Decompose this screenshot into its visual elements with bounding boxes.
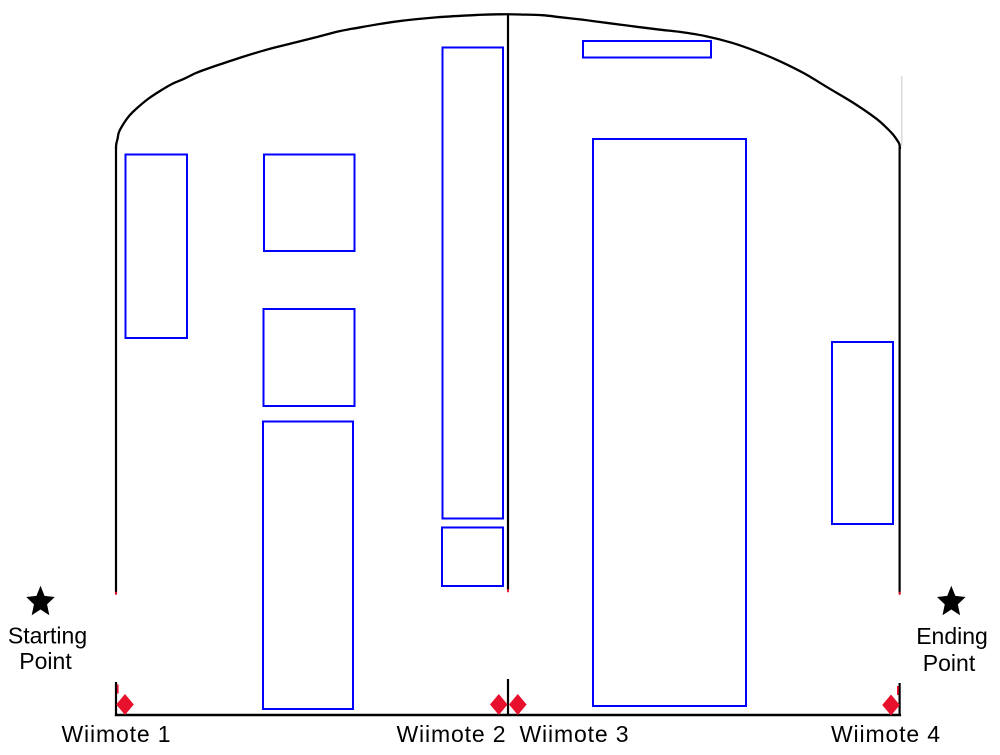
svg-text:Wiimote 3: Wiimote 3	[520, 721, 630, 747]
svg-text:Starting: Starting	[8, 623, 87, 649]
svg-text:Ending: Ending	[916, 623, 988, 649]
svg-text:Wiimote 2: Wiimote 2	[397, 721, 507, 747]
svg-text:Point: Point	[923, 650, 976, 676]
svg-text:Wiimote 1: Wiimote 1	[62, 721, 172, 747]
svg-text:Point: Point	[19, 648, 72, 674]
svg-text:Wiimote 4: Wiimote 4	[831, 721, 941, 747]
